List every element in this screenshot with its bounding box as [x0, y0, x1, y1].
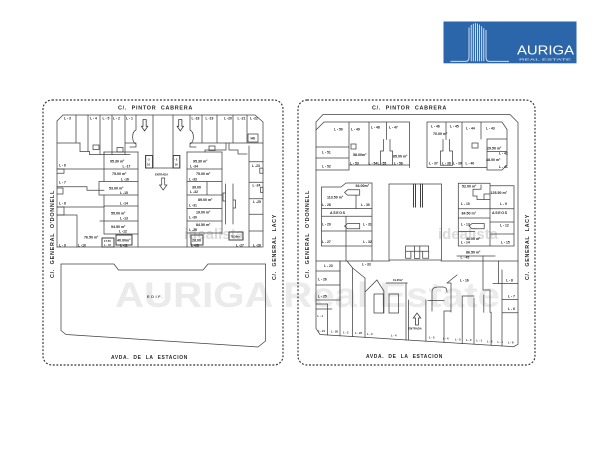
- svg-text:L - 37: L - 37: [104, 243, 111, 247]
- svg-text:L -32: L -32: [190, 190, 198, 194]
- svg-text:L - 45: L - 45: [450, 125, 459, 129]
- svg-text:L -18: L -18: [192, 117, 200, 121]
- svg-text:L -10: L -10: [78, 244, 86, 248]
- svg-text:L -28: L -28: [191, 244, 199, 248]
- svg-text:L - 41: L - 41: [499, 165, 508, 169]
- svg-text:L -12: L -12: [119, 230, 127, 234]
- svg-text:L - 4: L - 4: [391, 333, 397, 337]
- svg-text:C/. PINTOR CABRERA: C/. PINTOR CABRERA: [118, 106, 193, 112]
- svg-text:89.00 m²: 89.00 m²: [198, 198, 213, 202]
- svg-text:L - 26: L - 26: [318, 278, 327, 282]
- svg-text:L -13: L -13: [120, 217, 128, 221]
- svg-text:L - 3: L - 3: [367, 332, 373, 336]
- svg-text:AURIGA: AURIGA: [517, 43, 574, 58]
- svg-text:L - 6: L - 6: [59, 164, 66, 168]
- svg-text:L - 1: L - 1: [498, 340, 504, 344]
- svg-text:L - 38: L - 38: [442, 162, 451, 166]
- svg-text:L - 2: L - 2: [343, 330, 349, 334]
- svg-text:L -22: L -22: [250, 117, 258, 121]
- svg-text:L -29: L -29: [189, 228, 197, 232]
- svg-text:L -27: L -27: [236, 244, 244, 248]
- svg-text:L - 9: L - 9: [500, 202, 507, 206]
- svg-text:L -34: L -34: [190, 165, 198, 169]
- svg-text:L - 42: L - 42: [499, 152, 508, 156]
- svg-text:C/. GENERAL LACY: C/. GENERAL LACY: [272, 214, 278, 280]
- svg-text:L - 1: L - 1: [477, 339, 483, 343]
- svg-text:L - 2: L - 2: [487, 339, 493, 343]
- svg-text:AVDA. DE LA ESTACION: AVDA. DE LA ESTACION: [111, 355, 188, 361]
- svg-text:L - 1: L - 1: [126, 117, 133, 121]
- svg-text:19.00 m²: 19.00 m²: [196, 211, 211, 215]
- svg-text:53.00 m²: 53.00 m²: [109, 187, 124, 191]
- svg-text:L -17: L -17: [123, 165, 131, 169]
- svg-text:- 2: - 2: [174, 158, 178, 162]
- svg-text:L -30: L -30: [189, 216, 197, 220]
- svg-text:L - 6: L - 6: [508, 341, 514, 345]
- svg-text:H6: H6: [251, 137, 255, 141]
- svg-text:L - 56: L - 56: [394, 162, 403, 166]
- svg-text:L - 53: L - 53: [350, 162, 359, 166]
- svg-text:75.00 m²: 75.00 m²: [112, 172, 127, 176]
- svg-text:AVDA. DE LA ESTACION: AVDA. DE LA ESTACION: [366, 354, 443, 360]
- svg-text:L - 28: L - 28: [322, 203, 331, 207]
- svg-text:L - 39: L - 39: [453, 162, 462, 166]
- svg-text:L - 6: L - 6: [508, 307, 515, 311]
- svg-text:113.50 m²: 113.50 m²: [327, 196, 344, 200]
- svg-text:L - 27: L - 27: [322, 240, 331, 244]
- svg-text:L - 20: L - 20: [331, 330, 338, 334]
- svg-text:L - 52: L - 52: [322, 165, 331, 169]
- svg-text:ASEOS: ASEOS: [330, 211, 346, 215]
- svg-text:95.30 m²: 95.30 m²: [110, 160, 125, 164]
- svg-text:29.50 m²: 29.50 m²: [487, 147, 502, 151]
- svg-text:16: 16: [147, 163, 150, 167]
- svg-text:L - 30: L - 30: [361, 203, 370, 207]
- svg-text:L -16: L -16: [121, 178, 129, 182]
- svg-text:L - 47: L - 47: [389, 126, 398, 130]
- svg-text:L - 14: L - 14: [461, 241, 470, 245]
- svg-text:L - 32: L - 32: [363, 240, 372, 244]
- svg-text:L - 29: L - 29: [322, 223, 331, 227]
- svg-text:C/. GENERAL LACY: C/. GENERAL LACY: [525, 214, 531, 280]
- svg-text:L - 2: L - 2: [466, 338, 472, 342]
- svg-text:17.50: 17.50: [104, 239, 111, 243]
- svg-text:L - 40: L - 40: [466, 162, 475, 166]
- svg-text:L -11: L -11: [120, 244, 128, 248]
- svg-text:L -25: L -25: [253, 200, 261, 204]
- svg-text:L - 37: L - 37: [429, 162, 438, 166]
- svg-text:84.50 m²: 84.50 m²: [462, 212, 477, 216]
- svg-text:ENTRADA: ENTRADA: [409, 327, 422, 331]
- svg-text:L -23: L -23: [252, 164, 260, 168]
- svg-text:L - 9: L - 9: [59, 244, 66, 248]
- svg-text:L -19: L -19: [206, 117, 214, 121]
- svg-text:52.00 m²: 52.00 m²: [462, 184, 477, 188]
- svg-text:L - 22: L - 22: [355, 331, 362, 335]
- svg-text:75.00 m²: 75.00 m²: [196, 172, 211, 176]
- svg-text:94.50 m²: 94.50 m²: [111, 225, 126, 229]
- svg-text:EDIF.: EDIF.: [147, 294, 164, 299]
- svg-text:L - 12: L - 12: [500, 224, 509, 228]
- svg-text:85.00 m²: 85.00 m²: [393, 155, 408, 159]
- svg-text:L - 7: L - 7: [508, 295, 515, 299]
- svg-text:L - 4: L - 4: [90, 117, 97, 121]
- svg-text:REAL ESTATE: REAL ESTATE: [519, 59, 572, 62]
- svg-text:L -21: L -21: [238, 117, 246, 121]
- svg-text:L - 3: L - 3: [455, 337, 461, 341]
- svg-text:L - 43: L - 43: [486, 127, 495, 131]
- svg-text:L - 23: L - 23: [324, 264, 333, 268]
- svg-text:L - 15: L - 15: [501, 241, 510, 245]
- svg-text:L - 13: L - 13: [461, 223, 470, 227]
- svg-text:L - 4: L - 4: [443, 337, 449, 341]
- svg-text:55.00 m²: 55.00 m²: [111, 212, 126, 216]
- svg-text:AURIGA Real Estate: AURIGA Real Estate: [115, 276, 500, 315]
- svg-text:L - 46: L - 46: [431, 125, 440, 129]
- svg-text:78.50m²: 78.50m²: [231, 235, 241, 239]
- svg-text:ENTRADA: ENTRADA: [155, 173, 168, 177]
- svg-text:76.50 m²: 76.50 m²: [84, 236, 99, 240]
- svg-text:L - 48: L - 48: [371, 126, 380, 130]
- svg-text:94.00m²: 94.00m²: [356, 184, 370, 188]
- svg-text:28.00: 28.00: [192, 239, 201, 243]
- svg-text:L - 1: L - 1: [318, 314, 324, 318]
- svg-text:39.00: 39.00: [192, 186, 201, 190]
- svg-text:C/. GENERAL O'DONNELL: C/. GENERAL O'DONNELL: [50, 190, 56, 278]
- svg-text:L - 21: L - 21: [318, 329, 325, 333]
- svg-text:ASEOS: ASEOS: [492, 211, 508, 215]
- svg-text:L - 25: L - 25: [318, 295, 327, 299]
- svg-text:84.50 m²: 84.50 m²: [196, 223, 211, 227]
- svg-text:L - 2: L - 2: [113, 117, 120, 121]
- svg-text:L - 8: L - 8: [506, 279, 513, 283]
- svg-text:40.00m²: 40.00m²: [117, 239, 131, 243]
- svg-text:L - 10: L - 10: [461, 202, 470, 206]
- svg-text:L - 50: L - 50: [334, 128, 343, 132]
- svg-text:95.30 m²: 95.30 m²: [193, 160, 208, 164]
- svg-text:L -20: L -20: [224, 117, 232, 121]
- svg-text:16: 16: [175, 163, 178, 167]
- svg-text:86.50 m²: 86.50 m²: [466, 251, 481, 255]
- svg-text:19.25m²: 19.25m²: [393, 278, 403, 282]
- svg-text:L - 45: L - 45: [461, 256, 470, 260]
- svg-text:L - 54: L - 54: [369, 162, 378, 166]
- svg-text:L - 5: L - 5: [429, 336, 435, 340]
- svg-text:L - 49: L - 49: [351, 128, 360, 132]
- svg-text:L - 8: L - 8: [59, 202, 66, 206]
- svg-text:L - 55: L - 55: [378, 162, 387, 166]
- svg-text:58.00m²: 58.00m²: [353, 153, 367, 157]
- svg-text:48.00 m²: 48.00 m²: [486, 158, 501, 162]
- svg-text:- 2: - 2: [147, 158, 151, 162]
- svg-text:L -33: L -33: [189, 178, 197, 182]
- svg-text:L - 7: L - 7: [59, 181, 66, 185]
- svg-text:70.00 m²: 70.00 m²: [433, 132, 448, 136]
- svg-text:L - 33: L - 33: [362, 263, 371, 267]
- svg-text:125.50 m²: 125.50 m²: [491, 191, 508, 195]
- svg-text:L - 16: L - 16: [460, 279, 469, 283]
- svg-text:L -14: L -14: [120, 202, 128, 206]
- svg-text:L -31: L -31: [189, 204, 197, 208]
- svg-text:L - 51: L - 51: [322, 151, 331, 155]
- svg-text:C/. GENERAL O'DONNELL: C/. GENERAL O'DONNELL: [305, 190, 311, 278]
- svg-text:L -26: L -26: [253, 244, 261, 248]
- svg-text:L -15: L -15: [120, 191, 128, 195]
- svg-text:C/. PINTOR CABRERA: C/. PINTOR CABRERA: [372, 106, 447, 112]
- svg-text:L - 3: L - 3: [64, 117, 71, 121]
- svg-text:L - 5: L - 5: [103, 117, 110, 121]
- svg-text:L -24: L -24: [253, 184, 261, 188]
- svg-text:L - 44: L - 44: [466, 127, 475, 131]
- svg-text:L - 31: L - 31: [363, 223, 372, 227]
